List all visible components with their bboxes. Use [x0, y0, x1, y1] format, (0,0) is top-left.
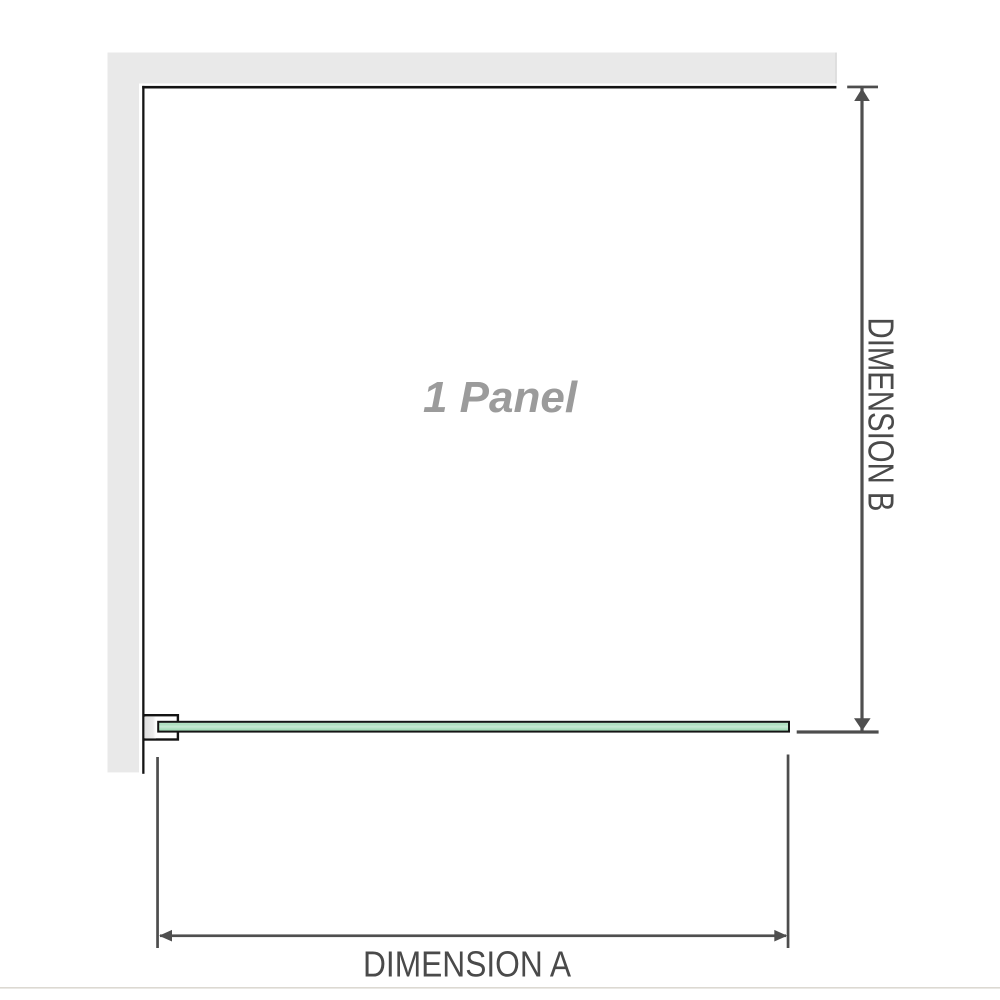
svg-text:1 Panel: 1 Panel	[423, 373, 578, 422]
svg-text:DIMENSION A: DIMENSION A	[363, 944, 571, 985]
svg-text:DIMENSION B: DIMENSION B	[861, 318, 902, 512]
